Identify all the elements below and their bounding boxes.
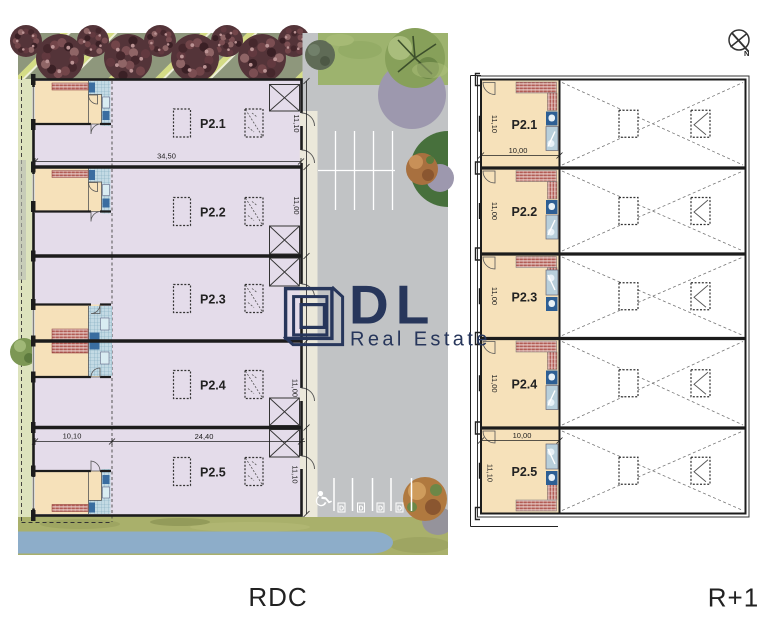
svg-text:11,10: 11,10 [292, 114, 301, 132]
svg-text:RDC: RDC [248, 582, 307, 612]
svg-text:P2.5: P2.5 [512, 465, 538, 479]
svg-text:Real Estate: Real Estate [350, 329, 491, 351]
svg-text:D: D [339, 506, 344, 513]
svg-text:10,00: 10,00 [513, 431, 532, 440]
svg-text:10,10: 10,10 [63, 432, 82, 441]
svg-text:11,00: 11,00 [490, 202, 499, 220]
svg-text:P2.2: P2.2 [200, 206, 226, 220]
svg-text:34,50: 34,50 [157, 152, 176, 161]
svg-text:11,10: 11,10 [486, 464, 495, 482]
svg-text:11,10: 11,10 [291, 465, 300, 483]
svg-text:11,00: 11,00 [490, 374, 499, 392]
svg-text:11,00: 11,00 [292, 196, 301, 214]
svg-text:P2.3: P2.3 [200, 293, 226, 307]
svg-text:11,10: 11,10 [490, 115, 499, 133]
svg-text:P2.4: P2.4 [512, 377, 538, 391]
svg-text:10,00: 10,00 [509, 146, 528, 155]
svg-text:N: N [744, 49, 749, 58]
svg-text:11,00: 11,00 [490, 287, 499, 305]
svg-text:24,40: 24,40 [195, 432, 214, 441]
svg-text:DL: DL [349, 274, 436, 336]
svg-text:P2.1: P2.1 [512, 118, 538, 132]
svg-text:P2.5: P2.5 [200, 466, 226, 480]
svg-text:R+1: R+1 [708, 583, 759, 613]
svg-text:D: D [397, 506, 402, 513]
svg-text:D: D [358, 506, 363, 513]
svg-text:P2.1: P2.1 [200, 117, 226, 131]
svg-text:P2.2: P2.2 [512, 205, 538, 219]
svg-text:D: D [378, 506, 383, 513]
svg-text:P2.4: P2.4 [200, 379, 226, 393]
svg-text:P2.3: P2.3 [512, 290, 538, 304]
svg-text:11,00: 11,00 [291, 379, 300, 397]
